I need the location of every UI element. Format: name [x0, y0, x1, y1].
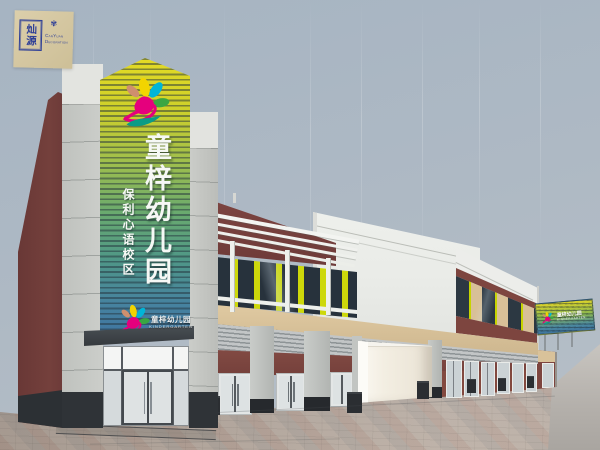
door-center-stile: [487, 363, 488, 395]
billboard-name-en: KINDERGARTEN: [557, 316, 586, 322]
end-edge: [555, 352, 557, 387]
door-center-stile: [290, 376, 292, 408]
sign-main-text: 童梓幼儿园: [137, 133, 176, 288]
stone-joints: [189, 148, 218, 392]
sign-sub-text: 保利心语校区: [120, 188, 137, 278]
entrance-sign: 童梓幼儿园 KINDERGARTEN: [146, 316, 196, 336]
door-handle: [237, 384, 239, 406]
glass-door: [446, 360, 462, 398]
watermark-card: 灿源 ✾ CanYuan Decoration: [13, 10, 73, 69]
pier-plinth: [62, 392, 103, 428]
end-tan-cap: [538, 350, 556, 362]
door-handle: [232, 384, 234, 406]
pergola-post: [326, 258, 331, 315]
planter: [527, 376, 534, 388]
door-handle: [150, 382, 152, 414]
column-plinth: [304, 397, 330, 411]
stone-joints: [62, 104, 103, 392]
pergola-post: [285, 250, 290, 312]
door-center-stile: [147, 372, 149, 423]
planter: [347, 392, 362, 413]
stone-column: [250, 326, 274, 413]
side-wall-plinth: [18, 390, 63, 428]
brand-seal: 灿源: [19, 19, 43, 51]
pier-plinth: [189, 392, 218, 428]
door-handle: [293, 382, 295, 402]
pier-cap: [62, 64, 103, 105]
glass-door: [481, 362, 495, 396]
entrance-glass-wall: [103, 346, 189, 426]
door-center-stile: [341, 375, 343, 404]
billboard-sign: 童梓幼儿园 KINDERGARTEN: [535, 299, 596, 336]
tower-right-pier: [189, 112, 218, 428]
planter: [467, 379, 476, 393]
planter: [498, 378, 506, 391]
glass-door: [542, 363, 554, 388]
pier-cap: [189, 112, 218, 149]
floral-seal-icon: ✾: [50, 19, 57, 28]
pergola-post: [230, 241, 235, 312]
door-center-stile: [234, 376, 236, 412]
planter: [417, 381, 429, 399]
entrance-double-door: [122, 370, 173, 425]
end-section: [538, 350, 556, 389]
flower-dancer-logo-icon: [114, 72, 180, 136]
door-handle: [288, 382, 290, 402]
roof-antenna: [233, 193, 236, 203]
entrance-sign-en: KINDERGARTEN: [146, 325, 196, 330]
glass-door: [276, 373, 306, 411]
sky-streak: [540, 0, 541, 250]
stone-column: [304, 331, 330, 411]
brand-name: CanYuan Decoration: [45, 33, 71, 46]
door-handle: [144, 382, 146, 414]
sky-streak: [479, 0, 480, 260]
door-center-stile: [453, 361, 454, 397]
flower-dancer-logo-icon: [539, 310, 556, 327]
architectural-rendering: 童梓幼儿园 KINDERGARTEN 童梓幼儿园 保利心语校区 童梓幼儿: [0, 0, 600, 450]
seal-text: 灿源: [23, 23, 39, 46]
glass-door: [218, 373, 252, 415]
kindergarten-sign-tower: 童梓幼儿园 保利心语校区: [100, 58, 190, 338]
tower-left-pier: [62, 64, 103, 428]
glass-door: [512, 363, 524, 393]
